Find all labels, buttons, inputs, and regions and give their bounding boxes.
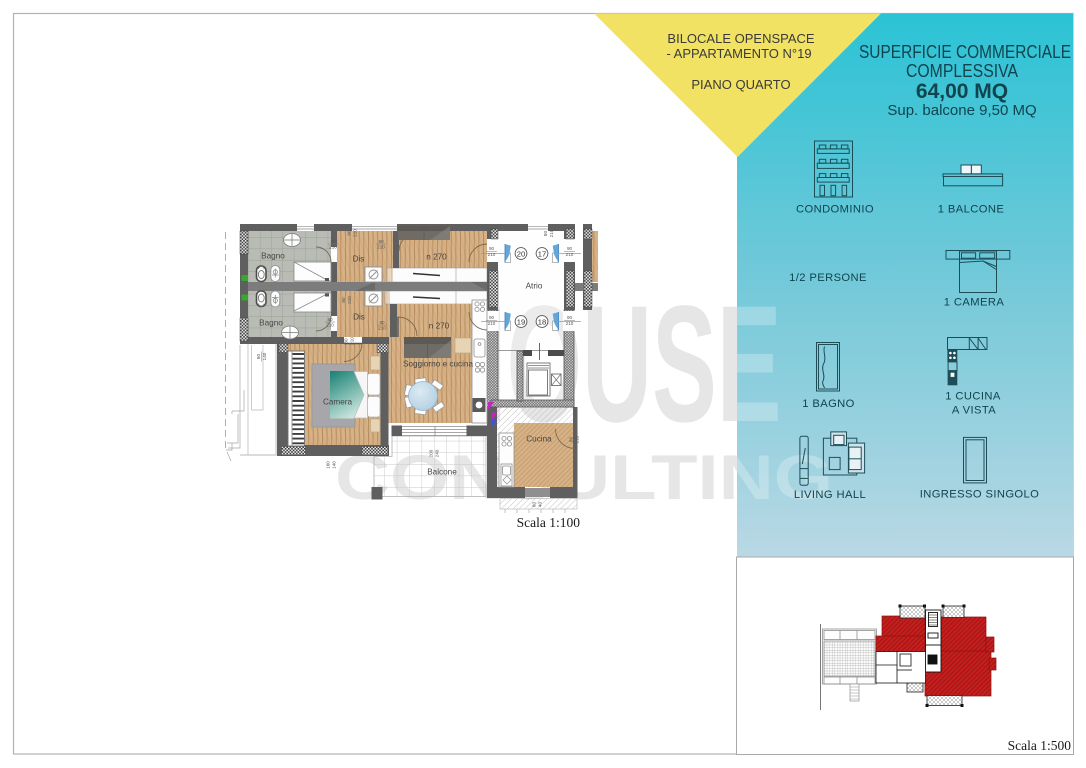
- svg-text:210: 210: [488, 321, 496, 326]
- svg-text:80: 80: [532, 502, 537, 508]
- svg-text:90: 90: [489, 315, 495, 320]
- svg-text:210: 210: [575, 435, 580, 443]
- svg-text:17: 17: [538, 249, 546, 258]
- svg-text:210: 210: [353, 229, 358, 237]
- svg-text:40: 40: [538, 502, 543, 508]
- svg-text:80: 80: [341, 297, 346, 303]
- svg-text:CONDOMINIO: CONDOMINIO: [796, 204, 874, 216]
- svg-text:Balcone: Balcone: [427, 468, 457, 477]
- svg-text:Bagno: Bagno: [259, 319, 283, 328]
- svg-text:COMPLESSIVA: COMPLESSIVA: [906, 60, 1019, 81]
- svg-text:1 BALCONE: 1 BALCONE: [938, 204, 1004, 216]
- svg-text:210: 210: [377, 245, 385, 250]
- svg-text:80: 80: [347, 230, 352, 236]
- svg-text:210: 210: [326, 323, 334, 328]
- svg-text:210: 210: [350, 337, 355, 345]
- svg-text:- APPARTAMENTO N°19: - APPARTAMENTO N°19: [666, 46, 811, 61]
- svg-text:210: 210: [488, 252, 496, 257]
- svg-text:210: 210: [378, 326, 386, 331]
- svg-text:80: 80: [378, 239, 384, 244]
- svg-text:Camera: Camera: [323, 398, 353, 407]
- svg-text:Atrio: Atrio: [526, 282, 543, 291]
- svg-text:80: 80: [569, 437, 574, 443]
- svg-text:1 CUCINA: 1 CUCINA: [945, 391, 1001, 403]
- svg-text:240: 240: [435, 449, 440, 457]
- svg-text:BILOCALE OPENSPACE: BILOCALE OPENSPACE: [667, 31, 814, 46]
- svg-text:Sup. balcone 9,50 MQ: Sup. balcone 9,50 MQ: [887, 102, 1036, 119]
- svg-text:160: 160: [326, 461, 331, 469]
- svg-text:Dis: Dis: [353, 313, 365, 322]
- svg-text:210: 210: [329, 245, 337, 250]
- svg-text:Dis: Dis: [353, 255, 365, 264]
- svg-text:80: 80: [344, 338, 349, 344]
- svg-text:210: 210: [566, 321, 574, 326]
- svg-text:18: 18: [538, 317, 546, 326]
- svg-text:Scala 1:100: Scala 1:100: [517, 515, 581, 530]
- svg-text:1 CAMERA: 1 CAMERA: [944, 297, 1005, 309]
- svg-text:90: 90: [567, 315, 573, 320]
- svg-text:210: 210: [347, 296, 352, 304]
- svg-text:210: 210: [566, 252, 574, 257]
- svg-text:19: 19: [517, 317, 525, 326]
- svg-text:140: 140: [332, 461, 337, 469]
- svg-text:1 BAGNO: 1 BAGNO: [802, 398, 855, 410]
- svg-text:Cucina: Cucina: [526, 435, 552, 444]
- svg-text:1/2 PERSONE: 1/2 PERSONE: [789, 272, 867, 284]
- svg-text:90: 90: [567, 246, 573, 251]
- svg-text:Scala 1:500: Scala 1:500: [1008, 738, 1072, 753]
- svg-text:PIANO QUARTO: PIANO QUARTO: [691, 77, 790, 92]
- svg-text:Bagno: Bagno: [261, 252, 285, 261]
- svg-text:Soggiorno e cucina: Soggiorno e cucina: [403, 360, 474, 369]
- svg-text:20: 20: [517, 249, 525, 258]
- svg-text:SUPERFICIE COMMERCIALE: SUPERFICIE COMMERCIALE: [859, 41, 1071, 62]
- svg-text:80: 80: [543, 231, 548, 237]
- svg-text:80: 80: [379, 320, 385, 325]
- svg-text:80: 80: [327, 317, 333, 322]
- svg-text:INGRESSO SINGOLO: INGRESSO SINGOLO: [920, 489, 1040, 501]
- svg-text:n 270: n 270: [429, 322, 450, 331]
- svg-text:200: 200: [429, 449, 434, 457]
- svg-text:140: 140: [262, 352, 267, 360]
- svg-text:210: 210: [549, 229, 554, 237]
- svg-text:90: 90: [489, 246, 495, 251]
- svg-text:A VISTA: A VISTA: [952, 405, 996, 417]
- svg-text:80: 80: [256, 354, 261, 360]
- svg-text:n 270: n 270: [426, 253, 447, 262]
- svg-text:80: 80: [330, 239, 336, 244]
- svg-text:LIVING HALL: LIVING HALL: [794, 489, 866, 501]
- svg-text:64,00 MQ: 64,00 MQ: [916, 80, 1008, 103]
